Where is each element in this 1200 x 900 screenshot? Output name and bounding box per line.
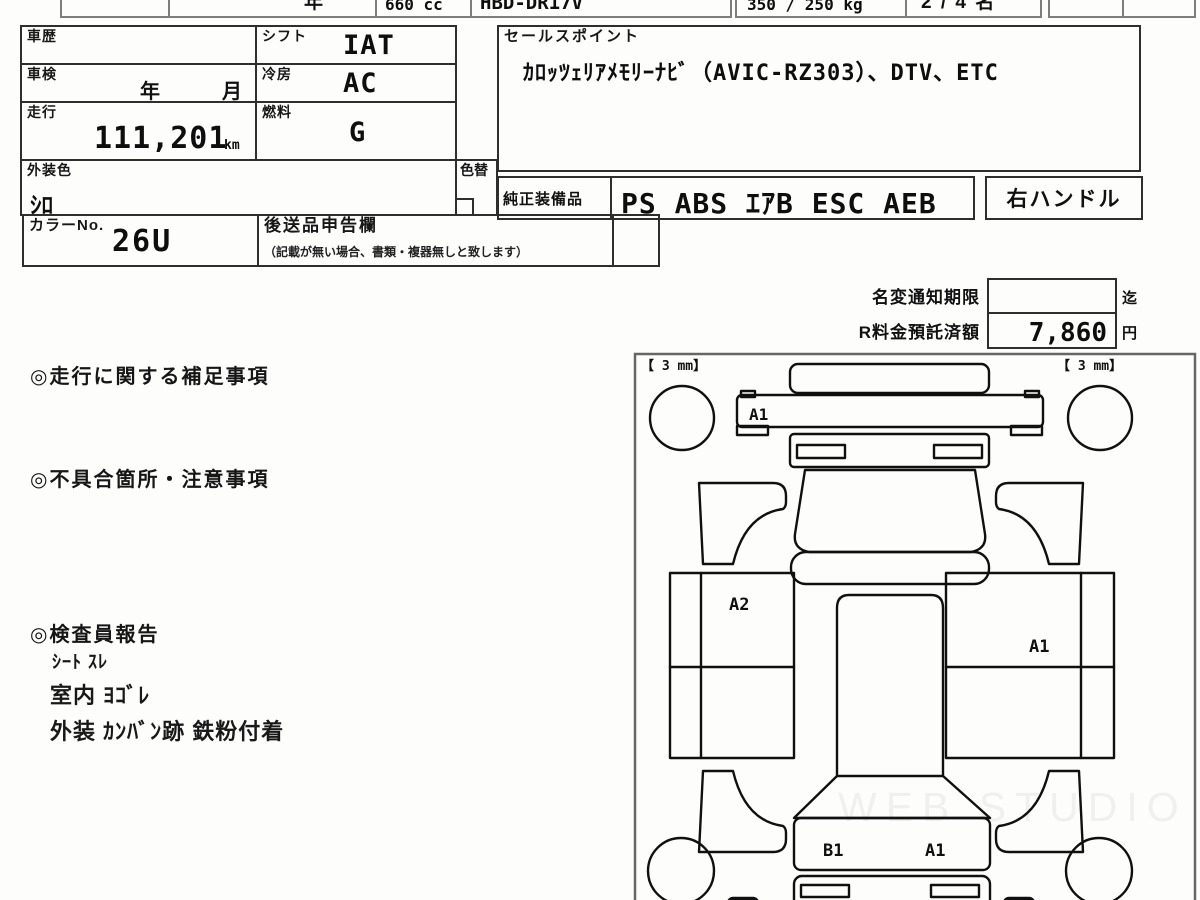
top-row-model-cell: HBD-DR17V	[470, 0, 732, 18]
top-row-empty-cell	[60, 0, 170, 18]
sales-point-label: セールスポイント	[499, 27, 1139, 44]
rear-window	[794, 776, 990, 818]
displacement-value: 660 cc	[385, 0, 443, 14]
front-grille	[790, 434, 989, 467]
recycle-label: R料金預託済額	[815, 318, 980, 343]
recycle-value: 7,860	[1029, 318, 1107, 348]
mileage-label: 走行	[22, 103, 57, 120]
equipment-label: 純正装備品	[499, 188, 583, 209]
car-diagram-svg: 【 3 mm】 【 3 mm】	[633, 352, 1197, 900]
later-goods-note: （記載が無い場合、書類・複器無しと致します）	[264, 243, 528, 260]
inspection-month-suffix: 月	[222, 75, 242, 104]
mileage-value: 111,201	[94, 121, 227, 156]
mileage-notes-heading: ◎走行に関する補足事項	[30, 360, 269, 389]
color-no-value: 26U	[112, 224, 172, 259]
later-goods-cell: 後送品申告欄 （記載が無い場合、書類・複器無しと致します）	[257, 214, 614, 267]
fender-rear-left	[699, 771, 786, 852]
shift-label: シフト	[257, 27, 307, 44]
shift-value: IAT	[343, 30, 395, 61]
shift-cell: シフト IAT	[255, 25, 457, 65]
ac-value: AC	[343, 68, 378, 99]
defects-heading: ◎不具合箇所・注意事項	[30, 463, 269, 492]
car-diagram: 【 3 mm】 【 3 mm】	[633, 352, 1197, 900]
tread-front-left-label: 【 3 mm】	[641, 358, 706, 374]
headlight-right	[934, 445, 982, 458]
color-change-cell: 色替	[455, 159, 498, 216]
inspection-label: 車検	[22, 65, 57, 82]
mark-rear-left: B1	[823, 841, 843, 861]
mileage-cell: 走行 111,201 km	[20, 101, 257, 161]
top-row-seating-cell: 2 / 4 名	[905, 0, 1042, 18]
mark-left-side: A2	[729, 595, 749, 615]
handle-value: 右ハンドル	[1007, 183, 1122, 213]
roof-panel	[837, 595, 943, 776]
exterior-color-label: 外装色	[22, 161, 72, 178]
cowl-panel	[791, 552, 989, 584]
inspection-cell: 車検 年 月	[20, 63, 257, 103]
fuel-value: G	[349, 117, 366, 148]
color-no-label: カラーNo.	[24, 216, 104, 233]
history-label: 車歴	[22, 27, 255, 44]
wheel-rear-right	[1066, 838, 1132, 900]
ac-cell: 冷房 AC	[255, 63, 457, 103]
color-no-cell: カラーNo. 26U	[22, 214, 259, 267]
headlight-left	[797, 445, 845, 458]
mark-right-side: A1	[1029, 637, 1049, 657]
front-bumper	[790, 364, 989, 393]
fuel-label: 燃料	[257, 103, 292, 120]
rear-light-left	[801, 885, 849, 897]
rear-light-right	[931, 885, 979, 897]
mark-front-panel: A1	[749, 405, 768, 424]
fender-front-left	[699, 483, 786, 564]
sales-point-text: ｶﾛｯﾂｪﾘｱﾒﾓﾘｰﾅﾋﾞ（AVIC-RZ303）、DTV、ETC	[523, 55, 999, 87]
wheel-front-left	[650, 386, 714, 450]
top-row-year-cell: 年	[168, 0, 377, 18]
fender-rear-right	[996, 771, 1083, 852]
name-change-box	[987, 278, 1117, 314]
inspector-line-exterior: 外装 ｶﾝﾊﾞﾝ跡 鉄粉付着	[50, 714, 284, 746]
history-cell: 車歴	[20, 25, 257, 65]
side-panel-right	[946, 573, 1114, 758]
equipment-value: PS ABS ｴｱB ESC AEB	[621, 182, 937, 222]
wheel-front-right	[1068, 386, 1132, 450]
name-change-suffix: 迄	[1122, 287, 1137, 308]
recycle-suffix: 円	[1122, 322, 1137, 343]
color-change-label: 色替	[457, 161, 496, 178]
auction-sheet: { "header_partial": { "year_label": "年",…	[0, 0, 1200, 900]
mark-rear-right: A1	[925, 841, 945, 861]
name-change-label: 名変通知期限	[830, 283, 980, 308]
tread-front-right-label: 【 3 mm】	[1057, 358, 1122, 374]
inspector-line-seat: ｼｰﾄ ｽﾚ	[52, 648, 108, 674]
inspector-line-interior: 室内 ﾖｺﾞﾚ	[50, 678, 150, 710]
front-panel	[737, 395, 1043, 427]
ac-label: 冷房	[257, 65, 292, 82]
fender-front-right	[996, 483, 1083, 564]
wheel-rear-left	[648, 838, 714, 900]
handle-box: 右ハンドル	[985, 176, 1143, 220]
fuel-cell: 燃料 G	[255, 101, 457, 161]
equipment-box: 純正装備品 PS ABS ｴｱB ESC AEB	[497, 176, 975, 220]
recycle-box: 7,860	[987, 312, 1117, 349]
sales-point-box: セールスポイント ｶﾛｯﾂｪﾘｱﾒﾓﾘｰﾅﾋﾞ（AVIC-RZ303）、DTV、…	[497, 25, 1141, 172]
windshield	[795, 470, 985, 552]
year-suffix: 年	[304, 0, 323, 14]
equipment-label-cell: 純正装備品	[499, 178, 612, 218]
top-row-displacement-cell: 660 cc	[375, 0, 472, 18]
exterior-color-cell: 外装色 ｼﾛ	[20, 159, 457, 216]
load-capacity: 350 / 250 kg	[747, 0, 863, 14]
seating-capacity: 2 / 4 名	[921, 0, 996, 14]
top-row-load-cell: 350 / 250 kg	[735, 0, 907, 18]
inspector-heading: ◎検査員報告	[30, 618, 159, 647]
model-code: HBD-DR17V	[480, 0, 583, 14]
top-row-small-cell-1	[1048, 0, 1124, 18]
top-row-small-cell-2	[1122, 0, 1196, 18]
mileage-unit: km	[224, 138, 240, 153]
inspection-year-suffix: 年	[140, 75, 160, 104]
